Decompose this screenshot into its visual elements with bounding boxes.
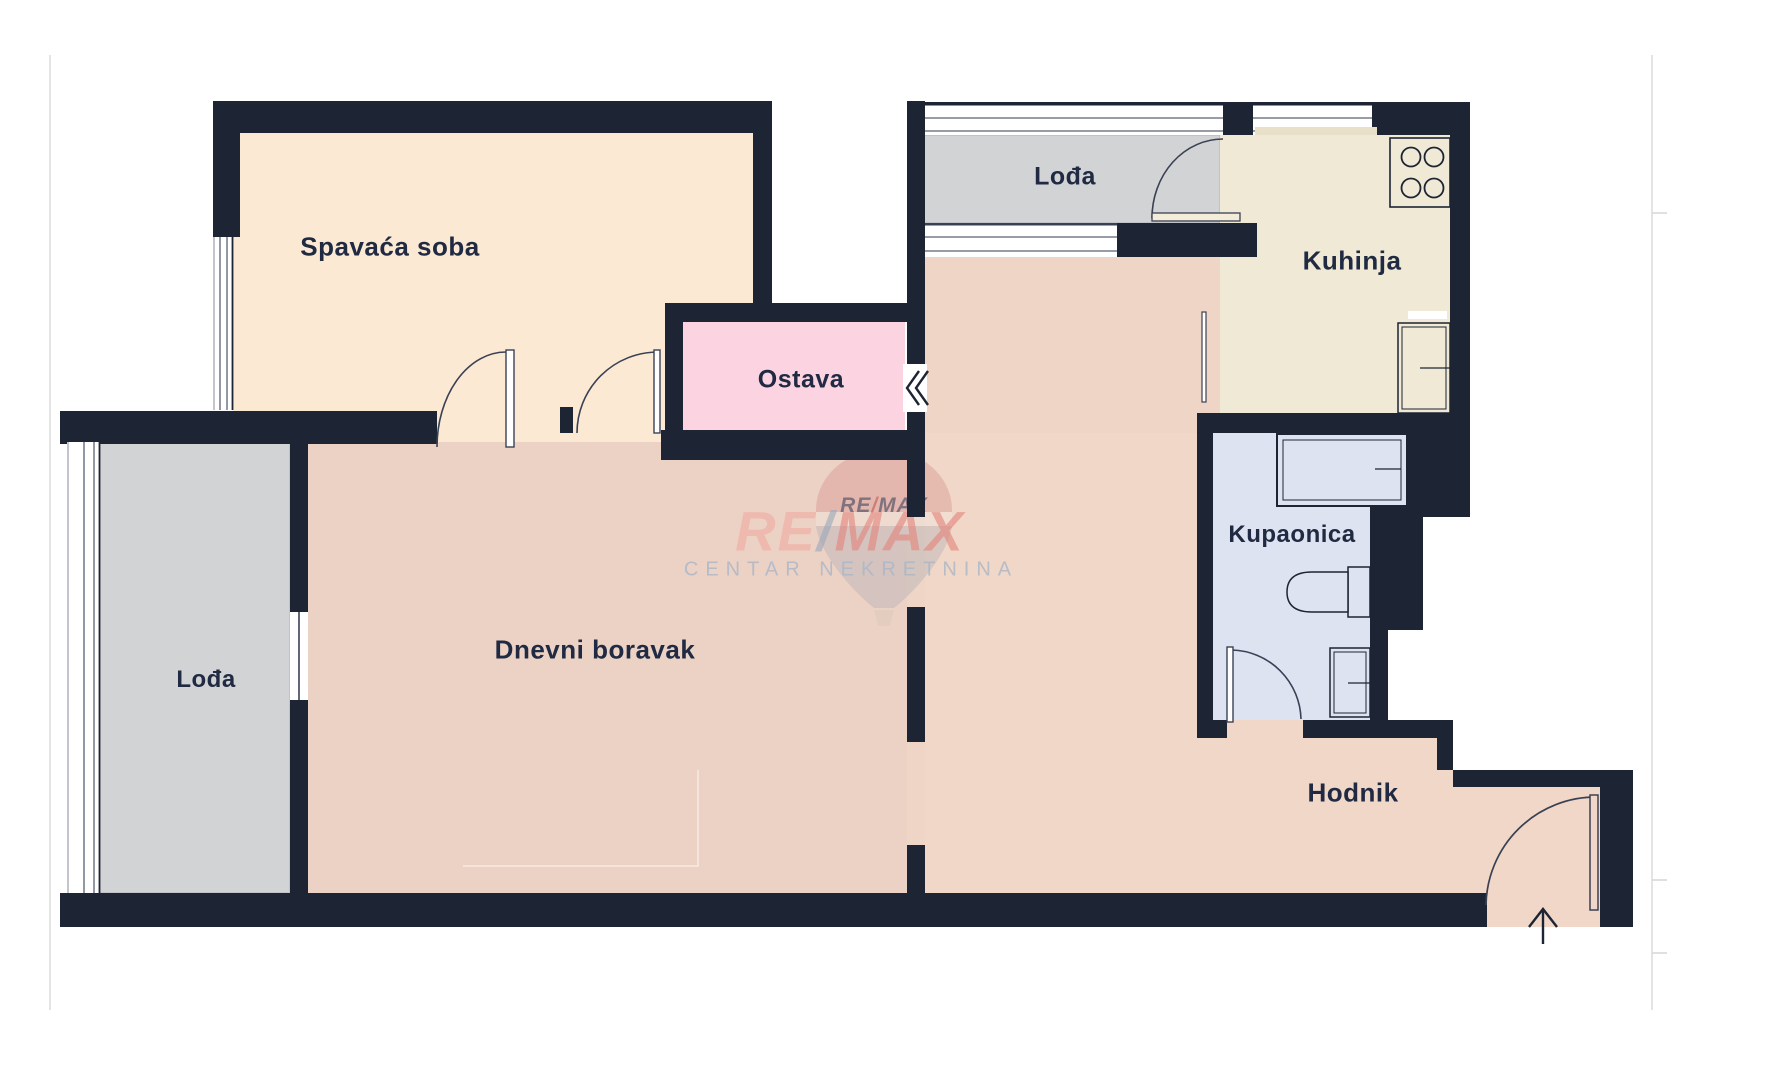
room-label-bathroom: Kupaonica — [1228, 521, 1355, 549]
labels-layer: Spavaća soba Lođa Kuhinja Ostava Kupaoni… — [0, 0, 1771, 1080]
room-label-bedroom: Spavaća soba — [300, 232, 479, 263]
room-label-loggia-top: Lođa — [1034, 163, 1096, 192]
room-label-hallway: Hodnik — [1307, 778, 1398, 809]
room-label-kitchen: Kuhinja — [1303, 246, 1402, 277]
room-label-living-room: Dnevni boravak — [495, 635, 696, 666]
room-label-loggia-left: Lođa — [176, 666, 235, 694]
floorplan-page: { "rooms": { "spavaca_soba": {"label": "… — [0, 0, 1771, 1080]
room-label-storage: Ostava — [758, 366, 844, 395]
